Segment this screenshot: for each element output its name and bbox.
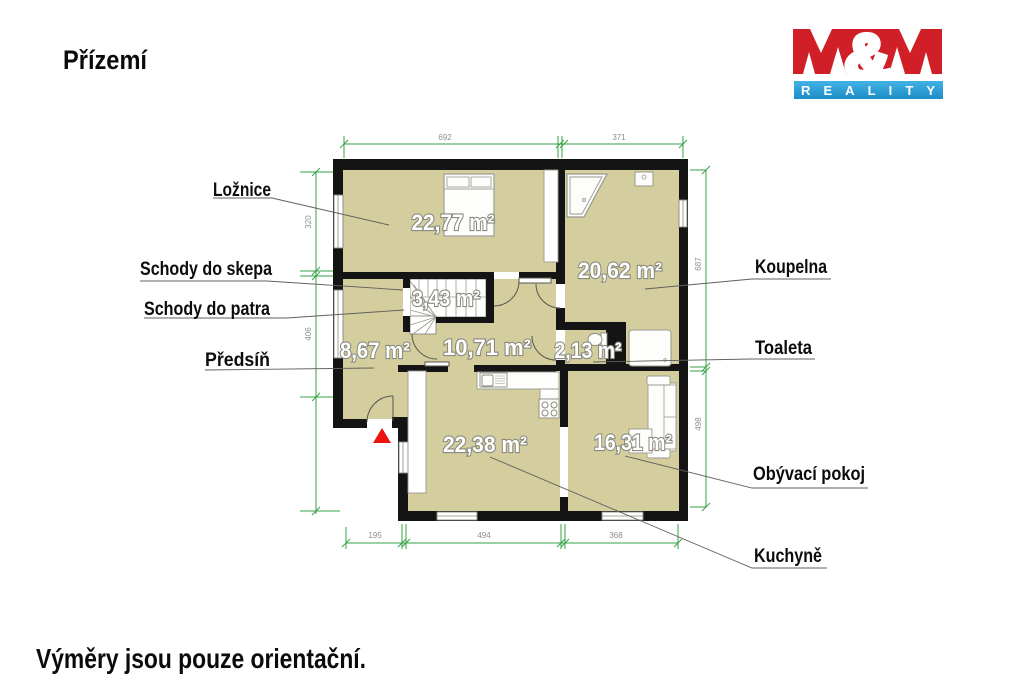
svg-text:494: 494 [477, 531, 491, 540]
svg-text:16,31 m²: 16,31 m² [594, 430, 672, 455]
svg-text:22,77 m²: 22,77 m² [412, 210, 495, 235]
svg-text:Kuchyně: Kuchyně [754, 546, 822, 567]
svg-text:10,71 m²: 10,71 m² [443, 335, 531, 360]
svg-text:692: 692 [438, 133, 452, 142]
svg-text:Ložnice: Ložnice [213, 180, 271, 201]
svg-text:Toaleta: Toaleta [755, 338, 812, 359]
svg-text:20,62 m²: 20,62 m² [578, 258, 662, 283]
svg-text:Přízemí: Přízemí [63, 45, 148, 75]
svg-text:195: 195 [368, 531, 382, 540]
svg-text:3,43 m²: 3,43 m² [412, 286, 480, 311]
svg-text:Koupelna: Koupelna [755, 257, 827, 278]
svg-text:498: 498 [694, 417, 703, 431]
svg-text:2,13 m²: 2,13 m² [555, 338, 622, 363]
svg-text:368: 368 [609, 531, 623, 540]
svg-text:Předsíň: Předsíň [205, 350, 270, 371]
svg-text:Obývací pokoj: Obývací pokoj [753, 464, 865, 485]
svg-text:Výměry jsou pouze orientační.: Výměry jsou pouze orientační. [36, 643, 366, 674]
svg-text:22,38 m²: 22,38 m² [443, 432, 527, 457]
svg-text:320: 320 [304, 215, 313, 229]
svg-text:406: 406 [304, 327, 313, 341]
svg-text:Schody do skepa: Schody do skepa [140, 259, 272, 280]
svg-text:Schody do patra: Schody do patra [144, 299, 270, 320]
svg-text:8,67 m²: 8,67 m² [340, 338, 410, 363]
svg-text:371: 371 [612, 133, 626, 142]
svg-text:687: 687 [694, 257, 703, 271]
